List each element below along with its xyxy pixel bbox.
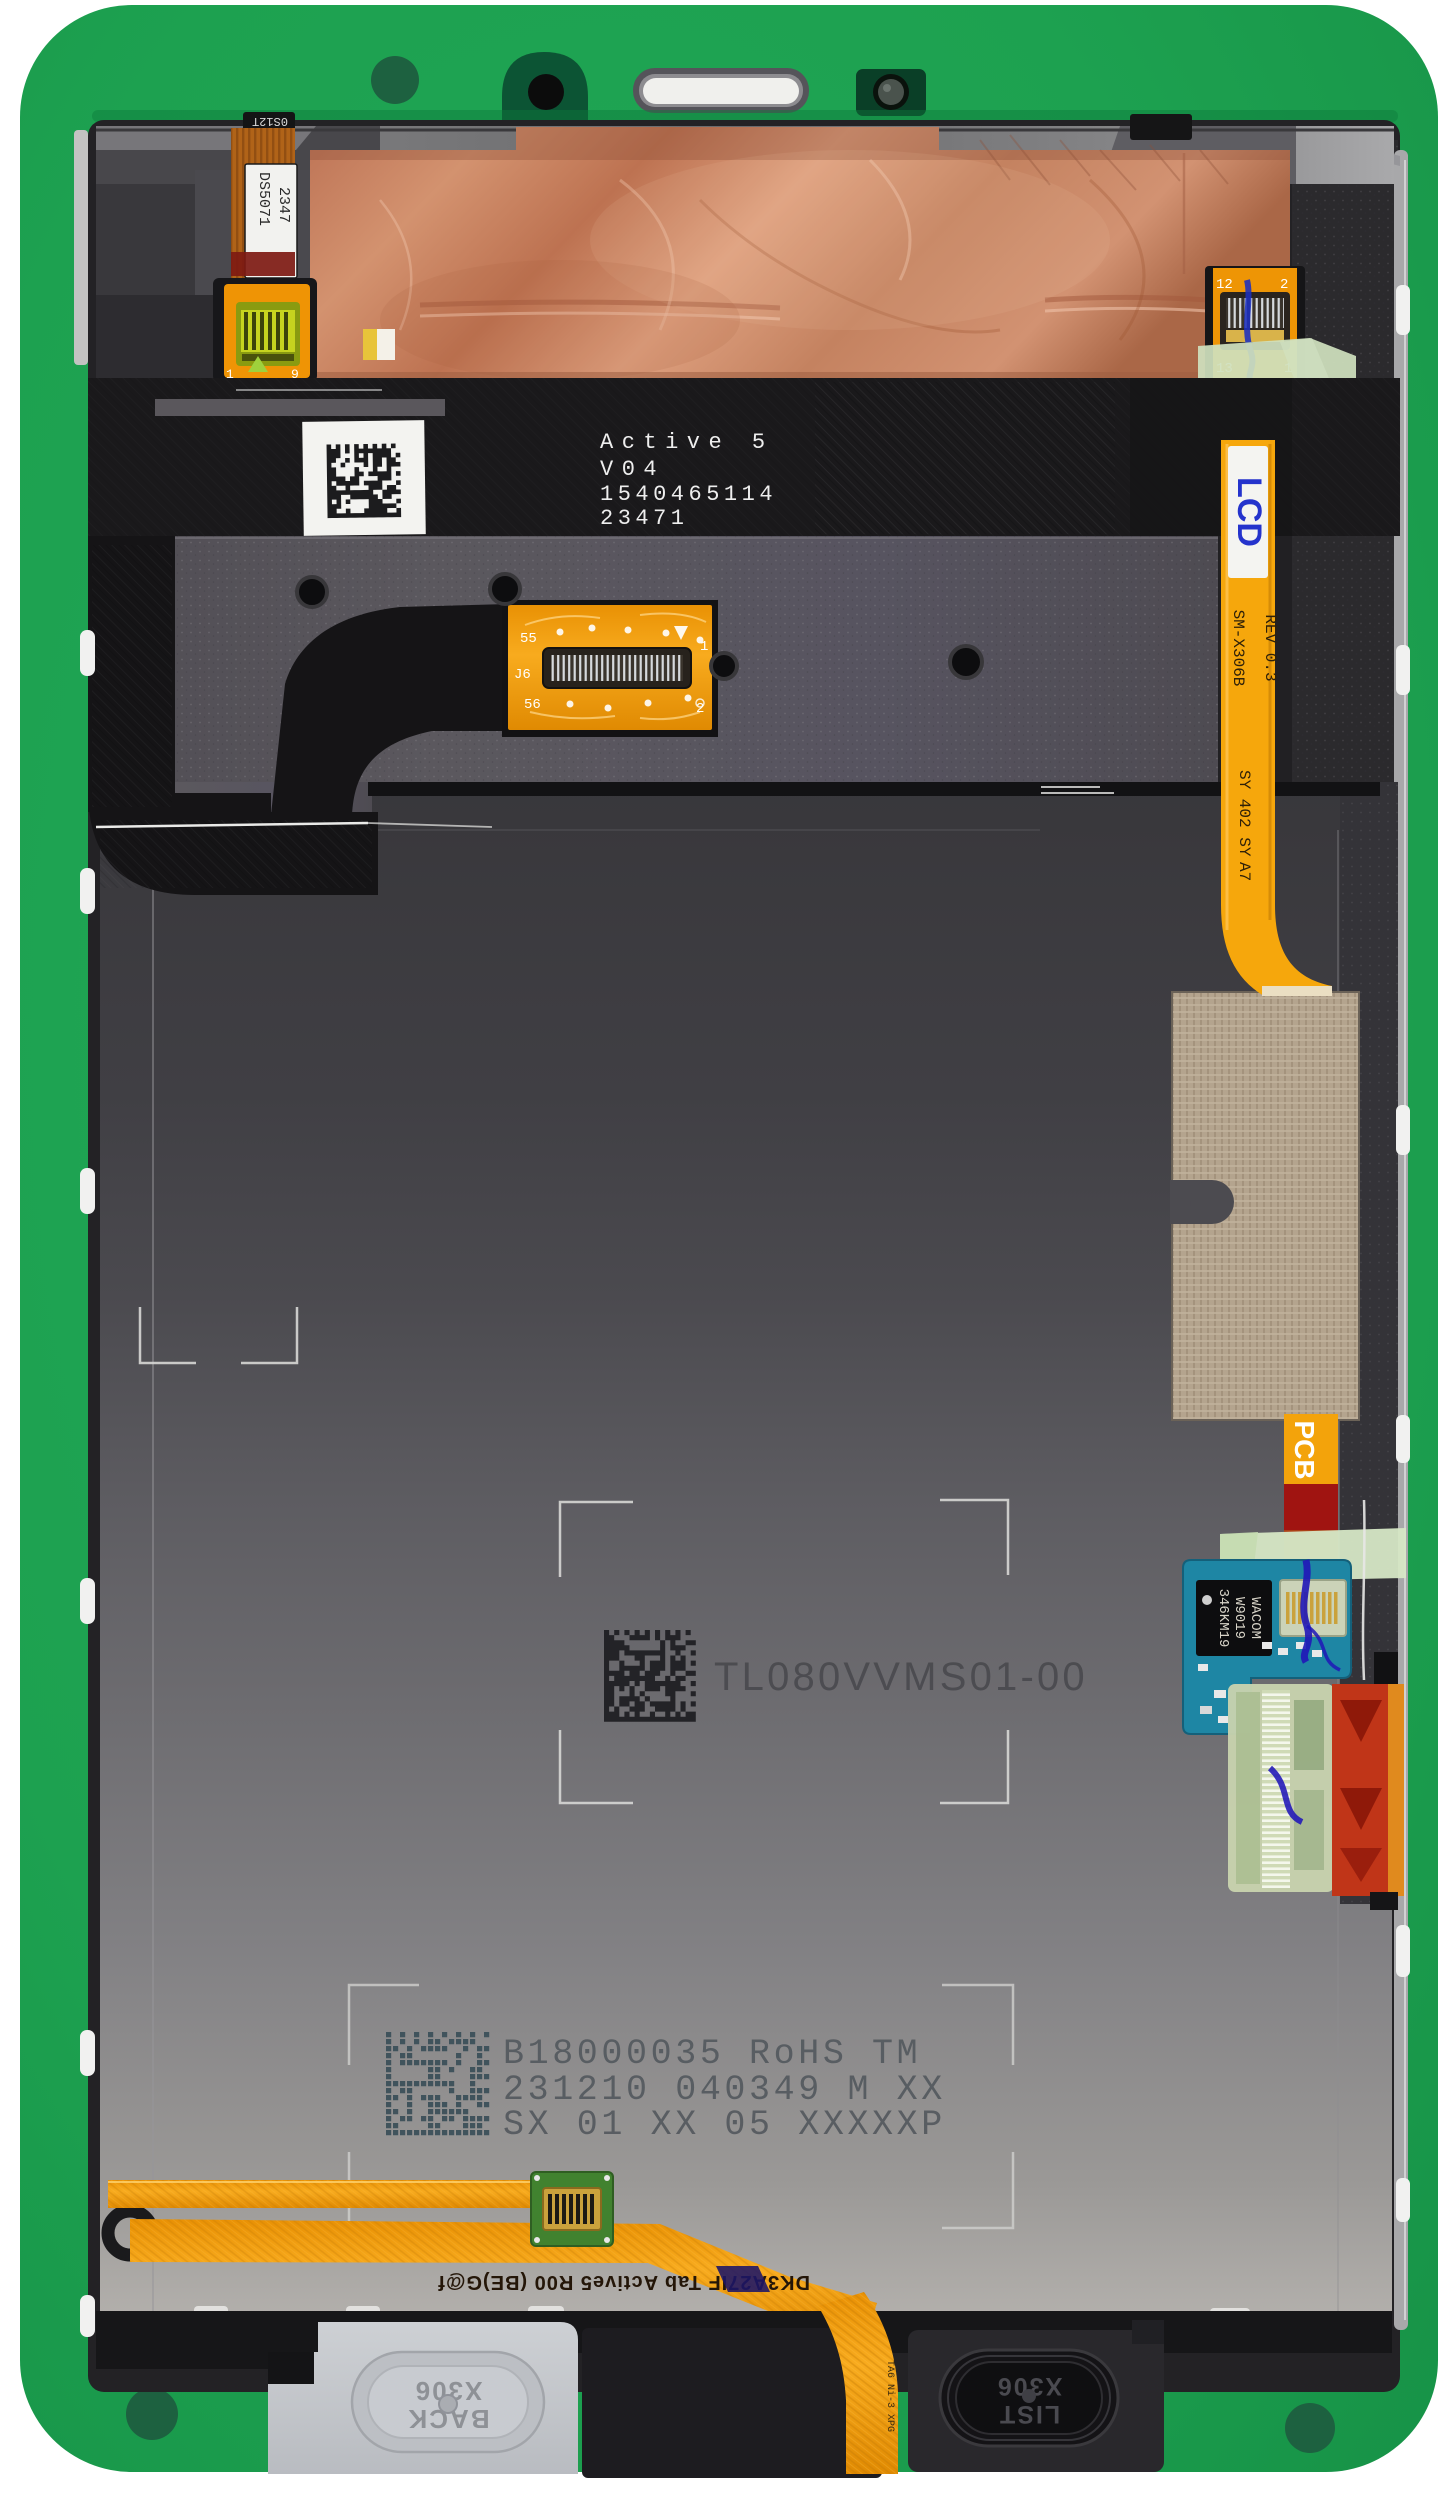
svg-text:346KM19: 346KM19 [1215, 1589, 1231, 1648]
svg-text:23471: 23471 [600, 506, 689, 531]
svg-text:PCB: PCB [1289, 1420, 1320, 1479]
svg-text:V04: V04 [600, 457, 665, 482]
svg-text:2347: 2347 [275, 187, 292, 223]
svg-text:231210 040349 M XX: 231210 040349 M XX [503, 2070, 946, 2110]
svg-text:W9019: W9019 [1231, 1597, 1247, 1639]
svg-text:TL080VVMS01-00: TL080VVMS01-00 [714, 1655, 1088, 1699]
svg-text:2: 2 [696, 701, 704, 717]
svg-text:56: 56 [524, 697, 541, 713]
svg-text:LCD: LCD [1230, 477, 1268, 547]
svg-text:SY 402 SY: SY 402 SY [1235, 770, 1253, 857]
svg-text:SM-X306B: SM-X306B [1229, 610, 1247, 687]
svg-text:2: 2 [1280, 277, 1288, 293]
svg-text:DS5071: DS5071 [255, 172, 272, 226]
svg-text:TA6 Ni-3 XPG: TA6 Ni-3 XPG [884, 2360, 896, 2432]
svg-text:1540465114: 1540465114 [600, 482, 777, 507]
svg-text:A7: A7 [1235, 862, 1253, 881]
svg-text:B18000035 RoHS TM: B18000035 RoHS TM [503, 2034, 921, 2074]
svg-text:55: 55 [520, 631, 537, 647]
svg-text:12: 12 [1216, 277, 1233, 293]
svg-text:Active 5: Active 5 [600, 430, 774, 455]
svg-text:LIST: LIST [998, 2400, 1060, 2428]
svg-text:WACOM: WACOM [1247, 1597, 1263, 1639]
svg-text:0S12T: 0S12T [252, 114, 288, 128]
svg-text:REV 0.3: REV 0.3 [1261, 614, 1279, 681]
svg-text:1: 1 [700, 639, 708, 655]
svg-text:SX 01 XX 05 XXXXXP: SX 01 XX 05 XXXXXP [503, 2105, 946, 2145]
svg-text:J6: J6 [514, 667, 531, 683]
